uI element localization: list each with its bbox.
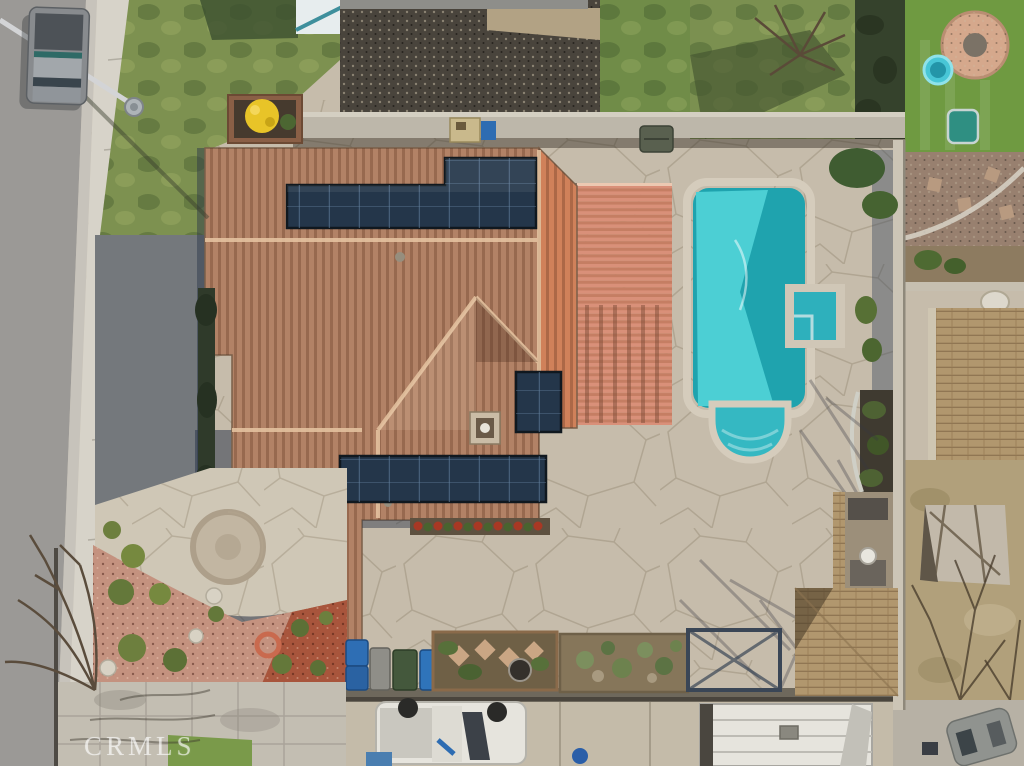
right-neighbor-yard <box>893 0 1024 766</box>
fence-line <box>337 697 893 701</box>
neighbor-roofline <box>340 0 588 9</box>
roof-vent <box>395 252 405 262</box>
rv-vent <box>780 726 798 739</box>
yellow-bush-planter <box>228 95 302 143</box>
truck-bed-dark <box>34 13 83 51</box>
grass-wedge <box>168 735 252 766</box>
spa <box>785 284 845 348</box>
bin-gray <box>370 648 390 690</box>
rear-neighbor-gravel-yard <box>340 0 600 114</box>
bin-green <box>393 650 417 690</box>
solar-array-small <box>516 372 561 432</box>
front-yard <box>93 468 347 700</box>
blue-cooler <box>481 121 496 140</box>
lawn-shadow <box>200 0 298 40</box>
bin-blue-2 <box>346 666 368 690</box>
patio-cover <box>573 183 672 425</box>
bin-blue-1 <box>346 640 368 666</box>
neighbor-shed-roof <box>936 308 1024 460</box>
yellow-bush <box>245 99 279 133</box>
flower-bed <box>410 518 550 535</box>
blue-barrel <box>572 748 588 764</box>
dark-planter-pot <box>509 659 531 681</box>
fire-pit-center <box>963 33 987 57</box>
garden-bed-pavers <box>433 632 557 690</box>
solar-array-lower <box>340 456 546 502</box>
aerial-photo: CRMLS <box>0 0 1024 766</box>
rv-trailer <box>700 704 872 766</box>
parked-truck <box>19 7 90 111</box>
rear-neighbor-lawn <box>600 0 690 114</box>
sink <box>860 548 876 564</box>
neighbor-wall <box>905 282 1024 291</box>
driveway-truck <box>366 698 526 766</box>
blue-tarp <box>366 752 392 766</box>
aerial-photo-canvas <box>0 0 1024 766</box>
teal-sandbox <box>948 110 978 143</box>
chimney <box>470 412 500 444</box>
neighbor-shed-corner <box>296 0 344 34</box>
back-wall <box>293 112 905 148</box>
